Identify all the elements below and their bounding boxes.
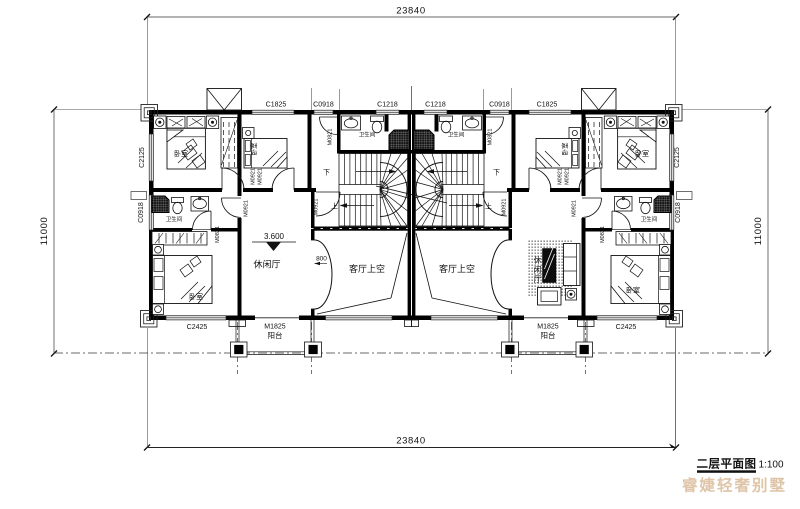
svg-text:卧室: 卧室: [626, 286, 640, 295]
svg-text:M1825: M1825: [264, 324, 286, 331]
svg-text:下: 下: [323, 169, 330, 177]
svg-text:下: 下: [493, 169, 500, 177]
svg-text:M0921: M0921: [258, 168, 264, 185]
svg-text:阳台: 阳台: [268, 330, 283, 340]
svg-text:C2425: C2425: [187, 324, 208, 331]
svg-text:二层平面图: 二层平面图: [697, 457, 757, 471]
svg-text:上: 上: [331, 202, 338, 211]
svg-text:M0921: M0921: [565, 168, 571, 185]
svg-text:休闲厅: 休闲厅: [534, 255, 542, 284]
svg-text:休闲厅: 休闲厅: [253, 259, 280, 270]
svg-text:11000: 11000: [753, 217, 764, 246]
svg-text:1:100: 1:100: [758, 460, 783, 471]
svg-text:M0821: M0821: [600, 226, 606, 243]
svg-text:3.600: 3.600: [264, 232, 285, 241]
svg-text:M1825: M1825: [537, 324, 559, 331]
svg-text:M0821: M0821: [488, 129, 494, 146]
svg-text:卧室: 卧室: [174, 149, 188, 158]
svg-text:卫生间: 卫生间: [359, 131, 376, 139]
svg-text:C2125: C2125: [674, 147, 681, 168]
svg-text:卧室: 卧室: [249, 142, 258, 156]
svg-text:23840: 23840: [396, 6, 425, 17]
svg-text:卧室: 卧室: [635, 149, 649, 158]
svg-text:M0921: M0921: [502, 199, 508, 216]
svg-text:卫生间: 卫生间: [448, 131, 465, 139]
svg-text:C1218: C1218: [377, 102, 398, 109]
svg-text:M0921: M0921: [244, 200, 250, 217]
svg-text:C2425: C2425: [616, 324, 637, 331]
svg-text:上: 上: [485, 202, 492, 211]
svg-text:睿婕轻奢别墅: 睿婕轻奢别墅: [682, 476, 787, 495]
svg-text:M0821: M0821: [215, 226, 221, 243]
svg-text:C0918: C0918: [138, 202, 145, 223]
svg-text:C0918: C0918: [313, 102, 334, 109]
svg-text:C0918: C0918: [675, 202, 682, 223]
svg-text:M0921: M0921: [251, 168, 257, 185]
svg-text:客厅上空: 客厅上空: [349, 263, 385, 274]
svg-text:卫生间: 卫生间: [166, 215, 183, 223]
svg-text:卫生间: 卫生间: [641, 215, 658, 223]
svg-text:卧室: 卧室: [560, 142, 569, 156]
svg-text:M0921: M0921: [314, 199, 320, 216]
svg-text:C1825: C1825: [266, 102, 287, 109]
svg-text:阳台: 阳台: [541, 330, 556, 340]
svg-text:C1218: C1218: [425, 102, 446, 109]
svg-text:M0921: M0921: [558, 168, 564, 185]
svg-text:M0921: M0921: [572, 200, 578, 217]
svg-text:M0821: M0821: [328, 129, 334, 146]
svg-text:C0918: C0918: [489, 102, 510, 109]
svg-text:C2125: C2125: [139, 147, 146, 168]
svg-text:客厅上空: 客厅上空: [439, 263, 475, 274]
svg-text:C1825: C1825: [537, 102, 558, 109]
svg-text:23840: 23840: [396, 436, 425, 447]
svg-text:卧室: 卧室: [189, 292, 203, 301]
svg-text:800: 800: [316, 256, 327, 263]
svg-text:11000: 11000: [39, 217, 50, 246]
